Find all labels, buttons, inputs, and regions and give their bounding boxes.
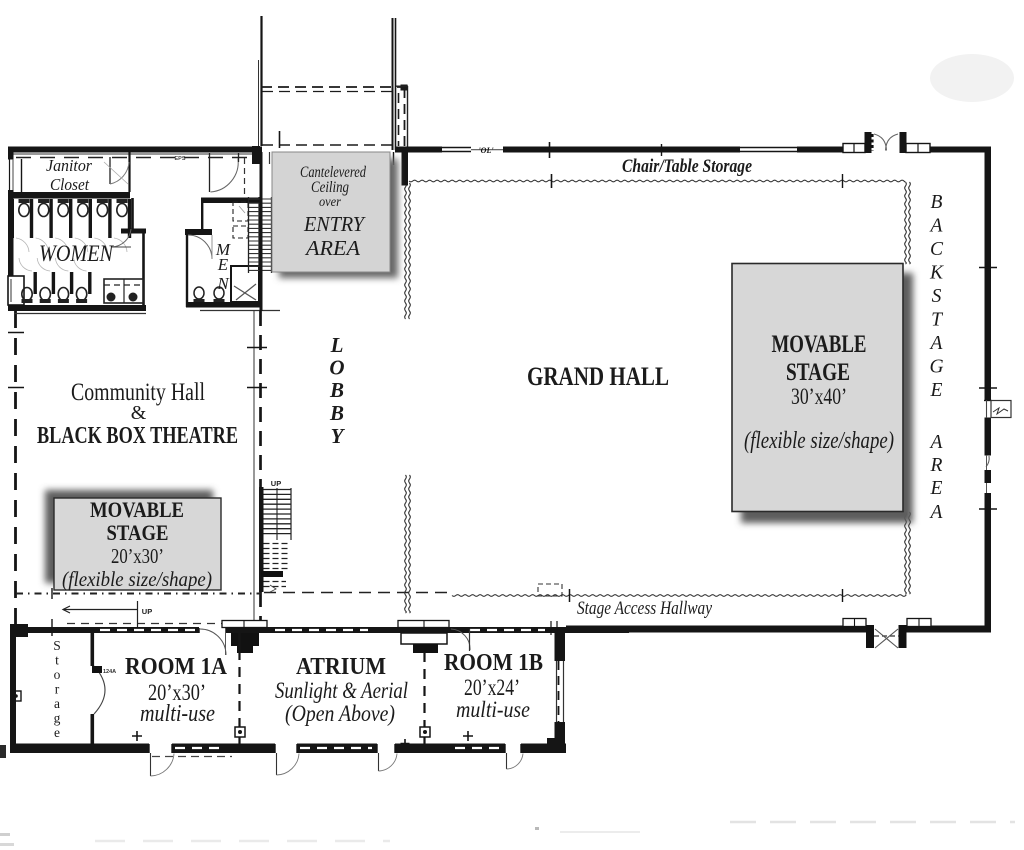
svg-text:O: O <box>329 356 344 380</box>
svg-text:C: C <box>930 239 944 260</box>
svg-text:30’x40’: 30’x40’ <box>791 384 847 409</box>
svg-text:a: a <box>54 696 60 711</box>
svg-text:T: T <box>931 310 943 331</box>
svg-text:A: A <box>929 333 943 354</box>
svg-text:B: B <box>931 192 943 213</box>
svg-text:e: e <box>54 725 60 740</box>
svg-text:(flexible size/shape): (flexible size/shape) <box>62 567 212 591</box>
svg-text:o: o <box>54 667 61 682</box>
svg-text:K: K <box>929 263 944 284</box>
svg-text:Chair/Table Storage: Chair/Table Storage <box>622 157 752 177</box>
svg-text:(Open Above): (Open Above) <box>285 701 395 726</box>
svg-text:G: G <box>929 357 943 378</box>
svg-text:AREA: AREA <box>304 236 360 260</box>
svg-text:UP: UP <box>142 607 152 616</box>
svg-text:&: & <box>131 402 147 424</box>
svg-text:20’x30’: 20’x30’ <box>111 544 164 568</box>
svg-text:ENTRY: ENTRY <box>303 212 366 236</box>
svg-text:Sunlight & Aerial: Sunlight & Aerial <box>275 678 408 703</box>
svg-text:A: A <box>929 432 943 453</box>
svg-text:E: E <box>930 478 943 499</box>
svg-text:Closet: Closet <box>50 175 89 194</box>
svg-text:S: S <box>53 638 61 653</box>
svg-text:R: R <box>930 455 943 476</box>
svg-text:MOVABLE: MOVABLE <box>772 331 867 358</box>
svg-text:g: g <box>54 711 61 726</box>
svg-text:124A: 124A <box>103 669 116 675</box>
svg-text:B: B <box>329 378 344 402</box>
svg-text:ATRIUM: ATRIUM <box>296 654 386 680</box>
svg-text:over: over <box>319 195 341 210</box>
svg-text:multi-use: multi-use <box>456 697 530 722</box>
svg-text:GRAND HALL: GRAND HALL <box>527 362 669 391</box>
svg-text:A: A <box>929 216 943 237</box>
svg-text:UP: UP <box>271 479 281 488</box>
svg-text:MOVABLE: MOVABLE <box>90 497 184 522</box>
svg-text:EPS: EPS <box>174 156 185 162</box>
svg-text:E: E <box>217 255 229 274</box>
svg-text:L: L <box>330 333 344 357</box>
svg-text:N: N <box>216 274 230 293</box>
svg-text:STAGE: STAGE <box>107 520 169 545</box>
svg-text:E: E <box>930 380 943 401</box>
svg-text:(flexible size/shape): (flexible size/shape) <box>744 428 894 454</box>
svg-text:Stage Access Hallway: Stage Access Hallway <box>577 599 713 619</box>
svg-text:S: S <box>932 286 942 307</box>
svg-text:A: A <box>929 502 943 523</box>
svg-text:STAGE: STAGE <box>786 359 850 386</box>
svg-text:multi-use: multi-use <box>140 701 215 727</box>
svg-text:r: r <box>55 682 60 697</box>
svg-text:BLACK BOX THEATRE: BLACK BOX THEATRE <box>37 423 238 449</box>
svg-text:Janitor: Janitor <box>46 156 93 175</box>
svg-text:ROOM 1B: ROOM 1B <box>444 650 543 676</box>
svg-text:'OL': 'OL' <box>478 146 494 155</box>
svg-text:ROOM 1A: ROOM 1A <box>125 654 228 680</box>
svg-text:Y: Y <box>331 424 346 448</box>
svg-text:Ceiling: Ceiling <box>311 179 349 196</box>
svg-text:t: t <box>55 653 59 668</box>
svg-text:WOMEN: WOMEN <box>39 241 114 266</box>
svg-text:B: B <box>329 401 344 425</box>
